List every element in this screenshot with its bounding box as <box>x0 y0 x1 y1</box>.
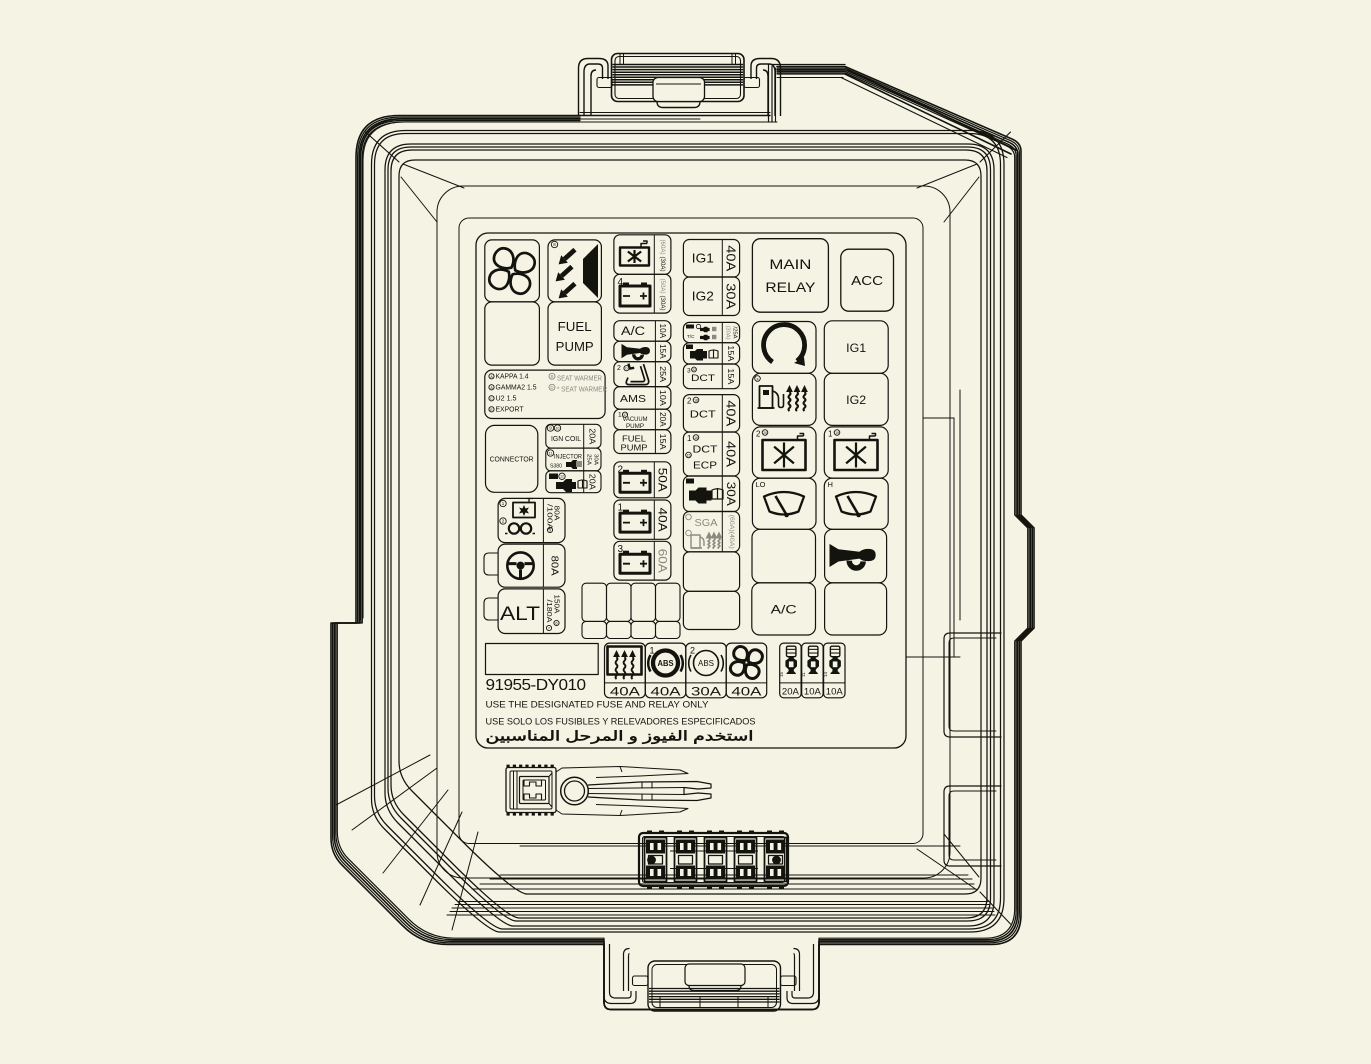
svg-text:15: 15 <box>687 453 691 457</box>
svg-text:40A: 40A <box>724 245 739 271</box>
svg-text:15A: 15A <box>726 345 736 361</box>
svg-text:14: 14 <box>823 671 828 677</box>
svg-text:30A: 30A <box>724 283 739 309</box>
svg-text:2: 2 <box>756 430 761 439</box>
svg-text:20A: 20A <box>587 428 597 444</box>
svg-text:40A: 40A <box>731 687 761 699</box>
svg-text:(30A): (30A) <box>659 296 666 311</box>
svg-text:15A: 15A <box>658 344 668 359</box>
svg-text:ABS: ABS <box>658 659 675 668</box>
svg-text:2: 2 <box>687 397 692 406</box>
svg-text:E: E <box>490 408 493 412</box>
svg-text:25A: 25A <box>658 366 668 382</box>
svg-text:C: C <box>490 397 493 401</box>
svg-text:IG2: IG2 <box>846 395 866 407</box>
svg-text:VACUUM: VACUUM <box>623 416 648 423</box>
svg-text:11: 11 <box>801 672 806 677</box>
svg-text:ABS: ABS <box>698 659 714 668</box>
svg-text:FUEL: FUEL <box>622 435 647 444</box>
svg-text:20A: 20A <box>658 412 668 427</box>
svg-text:FUEL: FUEL <box>558 320 592 334</box>
svg-text:USE SOLO LOS FUSIBLES Y RELEVA: USE SOLO LOS FUSIBLES Y RELEVADORES ESPE… <box>486 717 756 727</box>
svg-text:CONNECTOR: CONNECTOR <box>490 455 534 464</box>
svg-text:10A: 10A <box>658 324 668 339</box>
svg-text:15A: 15A <box>658 434 668 450</box>
svg-text:USE THE DESIGNATED FUSE AND RE: USE THE DESIGNATED FUSE AND RELAY ONLY <box>486 700 709 710</box>
svg-text:11: 11 <box>549 451 553 455</box>
svg-text:10A: 10A <box>826 687 844 698</box>
svg-text:1: 1 <box>687 434 692 443</box>
svg-text:16: 16 <box>694 436 698 440</box>
svg-text:/180A: /180A <box>545 600 554 623</box>
svg-text:A: A <box>490 375 493 379</box>
svg-text:RELAY: RELAY <box>765 280 815 295</box>
svg-text:A/C: A/C <box>621 326 645 338</box>
svg-text:LO: LO <box>756 480 766 489</box>
svg-text:ACC: ACC <box>851 274 883 288</box>
svg-text:PUMP: PUMP <box>621 444 649 453</box>
svg-text:ECP: ECP <box>693 460 717 472</box>
svg-text:20: 20 <box>763 431 767 435</box>
svg-text:INJECTOR: INJECTOR <box>554 454 582 461</box>
svg-text:IG2: IG2 <box>692 290 714 304</box>
svg-text:B: B <box>550 374 553 379</box>
svg-text:40A: 40A <box>724 400 739 426</box>
svg-text:2: 2 <box>690 646 695 656</box>
svg-text:(30A): (30A) <box>659 257 666 272</box>
svg-text:PUMP: PUMP <box>556 340 594 354</box>
svg-text:IG1: IG1 <box>692 252 714 266</box>
svg-text:H: H <box>828 480 833 489</box>
svg-text:A: A <box>490 386 493 390</box>
svg-text:/25A: /25A <box>732 327 738 339</box>
svg-text:SEAT WARMER: SEAT WARMER <box>557 376 602 383</box>
svg-text:12: 12 <box>560 475 564 479</box>
svg-text:18: 18 <box>694 398 698 402</box>
svg-text:1: 1 <box>828 430 833 439</box>
svg-text:* SEAT WARMER: * SEAT WARMER <box>557 387 607 394</box>
svg-text:(50A): (50A) <box>659 279 666 294</box>
svg-text:AMS: AMS <box>620 393 646 405</box>
svg-text:15A: 15A <box>726 368 736 384</box>
svg-text:IG1: IG1 <box>846 343 866 355</box>
svg-text:40A: 40A <box>724 441 739 467</box>
svg-text:IGN COIL: IGN COIL <box>551 436 581 443</box>
svg-text:T/C: T/C <box>687 334 695 339</box>
svg-text:GAMMA2 1.5: GAMMA2 1.5 <box>496 385 537 392</box>
svg-text:DCT: DCT <box>691 373 715 384</box>
svg-text:MAIN: MAIN <box>769 257 811 272</box>
svg-text:DCT: DCT <box>693 444 719 456</box>
svg-text:(60A)(40A): (60A)(40A) <box>728 515 734 549</box>
svg-text:20A: 20A <box>587 474 597 490</box>
svg-text:15: 15 <box>779 671 784 677</box>
svg-text:10: 10 <box>556 426 560 430</box>
svg-text:EXPORT: EXPORT <box>496 407 525 414</box>
svg-text:40A: 40A <box>656 508 670 532</box>
svg-text:22: 22 <box>692 368 696 372</box>
svg-text:40A: 40A <box>651 687 681 699</box>
svg-text:10A: 10A <box>804 687 822 698</box>
svg-text:ALT: ALT <box>500 604 540 625</box>
svg-text:30A: 30A <box>593 454 599 465</box>
svg-text:KAPPA 1.4: KAPPA 1.4 <box>496 374 529 381</box>
svg-text:80A: 80A <box>549 556 561 576</box>
svg-text:1: 1 <box>650 646 655 656</box>
svg-text:30A: 30A <box>724 482 738 506</box>
svg-text:2: 2 <box>617 365 621 372</box>
svg-text:20A: 20A <box>782 687 800 698</box>
svg-text:s: s <box>757 376 759 381</box>
svg-text:60A: 60A <box>656 549 670 573</box>
svg-text:(30A): (30A) <box>725 326 731 340</box>
svg-text:19: 19 <box>835 431 839 435</box>
svg-text:S380: S380 <box>550 464 562 470</box>
svg-text:PUMP: PUMP <box>626 423 644 430</box>
svg-text:30A: 30A <box>691 687 721 699</box>
svg-text:50A: 50A <box>656 468 670 492</box>
svg-text:1: 1 <box>618 412 622 419</box>
svg-text:25A: 25A <box>586 454 592 465</box>
svg-text:استخدم الفيوز و المرحل المناسب: استخدم الفيوز و المرحل المناسبين <box>486 729 754 745</box>
svg-text:(60A): (60A) <box>659 240 666 255</box>
svg-text:91955-DY010: 91955-DY010 <box>486 677 587 694</box>
svg-text:DCT: DCT <box>690 409 717 421</box>
svg-text:10A: 10A <box>658 390 668 406</box>
svg-text:A/C: A/C <box>771 603 797 617</box>
svg-text:40A: 40A <box>610 687 640 699</box>
svg-text:/100A: /100A <box>546 504 555 530</box>
svg-text:SGA: SGA <box>695 517 718 529</box>
svg-text:U2 1.5: U2 1.5 <box>496 396 517 403</box>
